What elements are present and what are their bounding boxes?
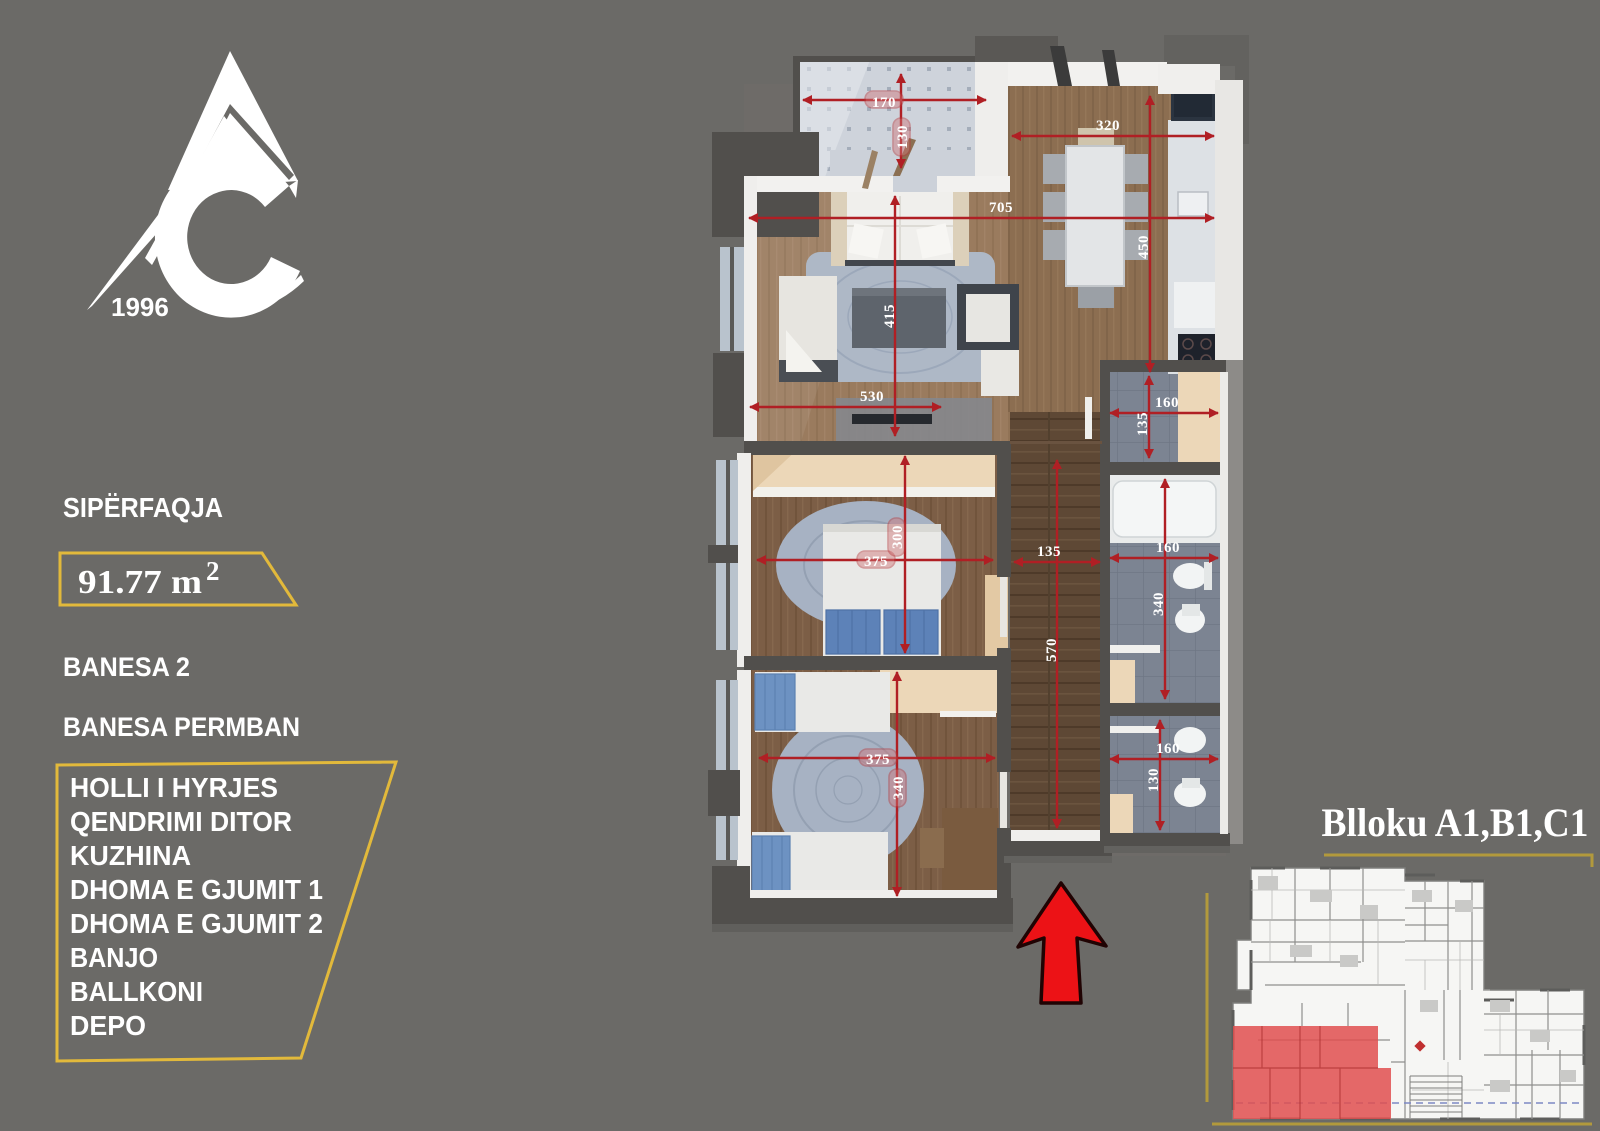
svg-text:DHOMA E GJUMIT 2: DHOMA E GJUMIT 2 <box>70 908 323 939</box>
svg-text:DEPO: DEPO <box>70 1010 146 1041</box>
svg-text:320: 320 <box>1096 118 1120 134</box>
svg-text:170: 170 <box>872 95 896 111</box>
svg-text:BANJO: BANJO <box>70 942 158 973</box>
svg-text:1996: 1996 <box>111 292 169 322</box>
svg-text:450: 450 <box>1136 235 1152 259</box>
svg-text:340: 340 <box>891 776 907 800</box>
svg-text:130: 130 <box>895 125 911 149</box>
svg-text:DHOMA E GJUMIT 1: DHOMA E GJUMIT 1 <box>70 874 323 905</box>
svg-text:375: 375 <box>864 554 888 570</box>
svg-text:300: 300 <box>890 525 906 549</box>
svg-text:375: 375 <box>866 752 890 768</box>
svg-text:135: 135 <box>1135 412 1151 436</box>
svg-text:135: 135 <box>1037 544 1061 560</box>
svg-text:130: 130 <box>1146 768 1162 792</box>
svg-text:91.77 m: 91.77 m <box>78 564 202 601</box>
svg-text:HOLLI I HYRJES: HOLLI I HYRJES <box>70 772 278 803</box>
svg-text:705: 705 <box>989 200 1013 216</box>
svg-text:2: 2 <box>206 556 220 586</box>
svg-text:415: 415 <box>882 304 898 328</box>
svg-text:570: 570 <box>1044 638 1060 662</box>
svg-text:QENDRIMI DITOR: QENDRIMI DITOR <box>70 806 292 837</box>
svg-text:BANESA 2: BANESA 2 <box>63 652 190 682</box>
svg-text:KUZHINA: KUZHINA <box>70 840 191 871</box>
svg-text:BANESA PERMBAN: BANESA PERMBAN <box>63 712 300 742</box>
svg-text:530: 530 <box>860 389 884 405</box>
svg-text:340: 340 <box>1151 592 1167 616</box>
svg-text:SIPËRFAQJA: SIPËRFAQJA <box>63 492 223 523</box>
svg-text:Blloku A1,B1,C1: Blloku A1,B1,C1 <box>1322 800 1589 845</box>
svg-text:160: 160 <box>1156 540 1180 556</box>
svg-text:BALLKONI: BALLKONI <box>70 976 203 1007</box>
svg-text:160: 160 <box>1156 741 1180 757</box>
svg-text:160: 160 <box>1155 395 1179 411</box>
